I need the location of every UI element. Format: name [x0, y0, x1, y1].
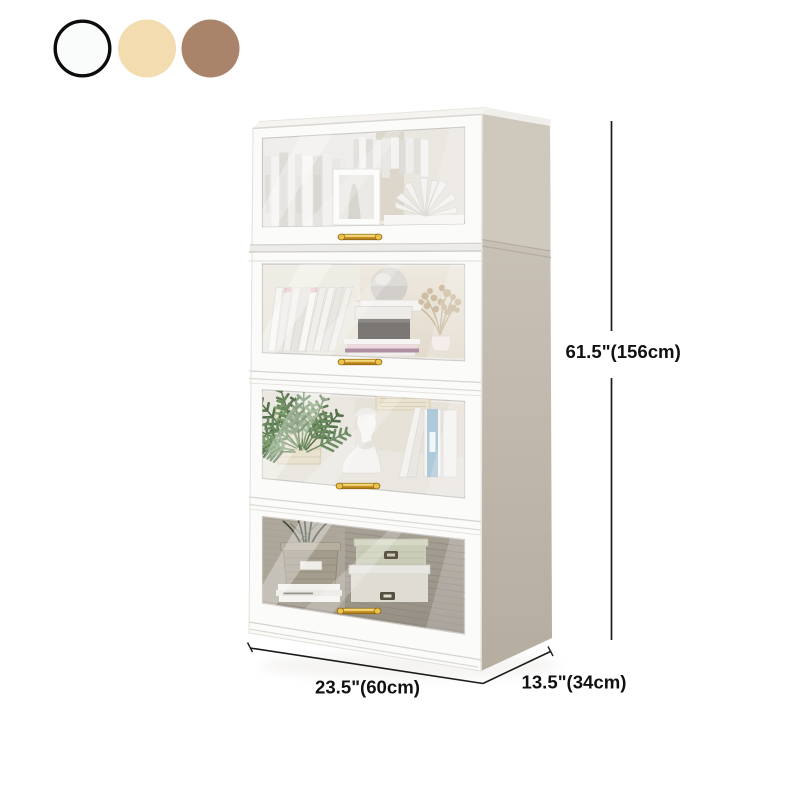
svg-text:23.5"(60cm): 23.5"(60cm) [315, 677, 420, 698]
svg-text:13.5"(34cm): 13.5"(34cm) [522, 672, 627, 693]
svg-text:61.5"(156cm): 61.5"(156cm) [566, 341, 681, 362]
